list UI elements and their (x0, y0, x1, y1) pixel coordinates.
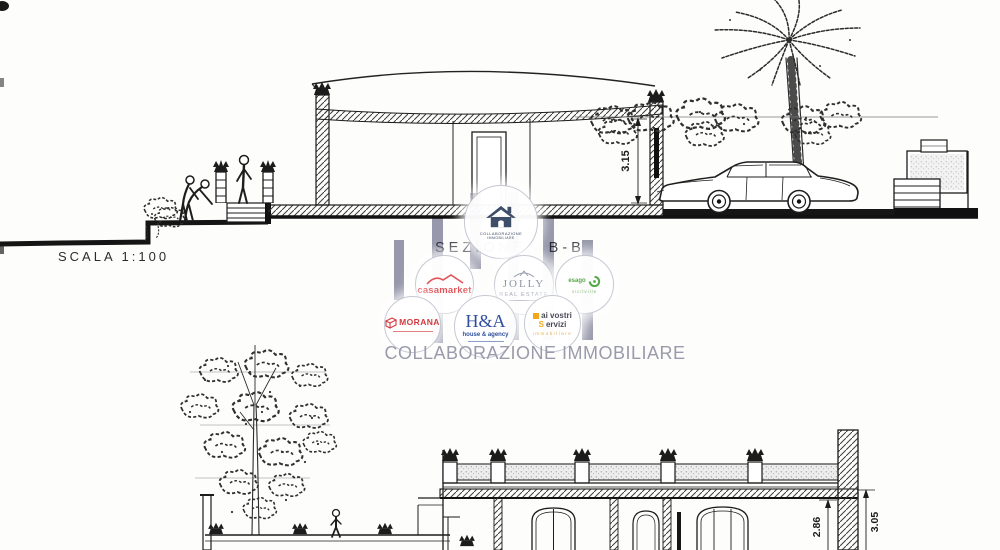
agency-subtitle: immobiliare (533, 331, 573, 336)
wall-slit-window (654, 128, 659, 178)
agency-subtitle: sicilville (572, 289, 597, 294)
terrain-steps-section (0, 200, 271, 244)
house-icon (484, 204, 518, 230)
dimension-label: 3.15 (620, 150, 632, 171)
center-logo-line2: IMMOBILIARE (487, 236, 514, 240)
right-wall-finial (647, 89, 665, 102)
garden-terrace-wall (200, 495, 475, 550)
agency-name: JOLLY (503, 278, 546, 291)
watermark-title: COLLABORAZIONE IMMOBILIARE (370, 343, 700, 364)
wall-pier (610, 498, 618, 550)
balustrade-finial (659, 448, 677, 461)
wall-pier (663, 498, 671, 550)
building-elevation (440, 430, 858, 550)
wall-vase (208, 523, 224, 534)
orange-square-icon (533, 313, 539, 319)
dimension-2-86: 2.86 (811, 499, 837, 550)
door-slit (677, 512, 681, 550)
watermark-skyline-bar (394, 240, 404, 300)
arched-windows (532, 507, 748, 550)
hedge-row (575, 98, 938, 146)
lamp-post (203, 495, 211, 550)
agency-name: ai vostri (541, 311, 572, 320)
wall-pier (494, 498, 502, 550)
scan-artifacts (0, 1, 9, 254)
divider (393, 331, 433, 333)
right-wall-cut (838, 430, 858, 550)
roof-line (312, 71, 655, 86)
logo-collaborazione-immobiliare: COLLABORAZIONE IMMOBILIARE (464, 185, 538, 259)
dimension-label: 2.86 (811, 517, 823, 538)
agency-name-2: ervizi (546, 320, 566, 329)
cube-icon (385, 317, 397, 329)
terrace-slab (440, 489, 858, 498)
wall-vase (459, 535, 475, 546)
balustrade-finial (746, 448, 764, 461)
car (657, 162, 858, 213)
small-figure (331, 510, 341, 538)
dimension-3-05: 3.05 (857, 489, 881, 550)
balustrade (441, 448, 838, 487)
balustrade-finial (441, 448, 459, 461)
agency-name: H&A (466, 311, 506, 332)
roofline-icon (425, 273, 465, 286)
wall-vase (377, 523, 393, 534)
crown-icon (511, 269, 537, 278)
scale-label: SCALA 1:100 (58, 249, 169, 264)
balustrade-finial (489, 448, 507, 461)
scanned-architectural-drawing-page: 3.15 (0, 0, 1000, 550)
balustrade-finial (573, 448, 591, 461)
agency-name: MORANA (399, 318, 440, 328)
accent-letter: S (539, 320, 544, 329)
agency-name: casamarket (417, 286, 471, 297)
green-swirl-icon (588, 275, 601, 288)
tree-trunk (252, 405, 259, 535)
gate-pillar-structure (894, 140, 978, 215)
wall-vase (292, 523, 308, 534)
dimension-label: 3.05 (869, 512, 881, 533)
agency-name: esago (568, 278, 585, 285)
agency-subtitle: house & agency (462, 332, 508, 339)
